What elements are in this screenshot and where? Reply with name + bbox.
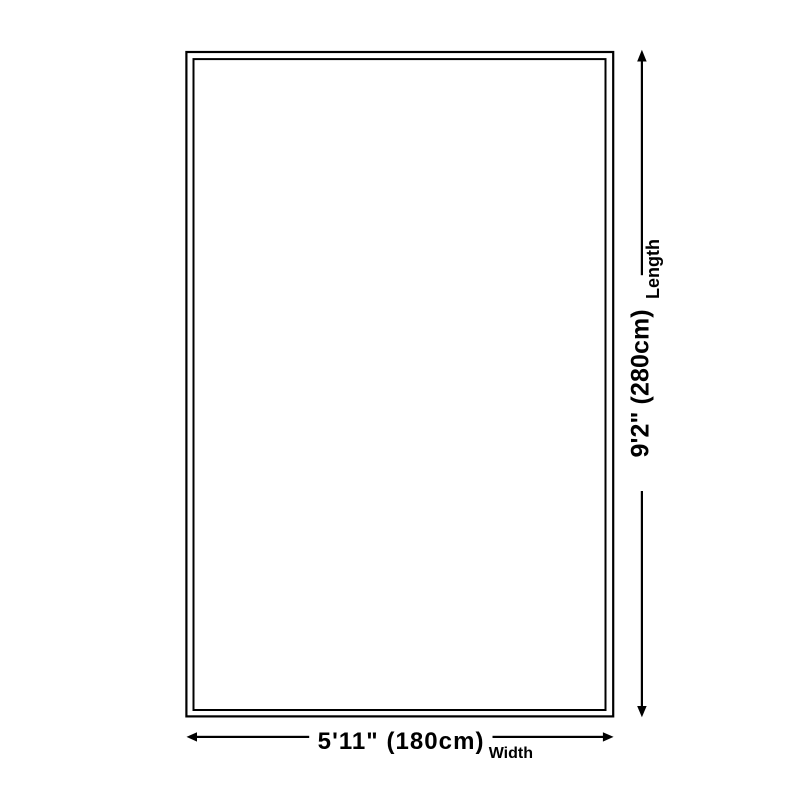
svg-text:5'11" (180cm): 5'11" (180cm) — [318, 728, 485, 755]
svg-text:Length: Length — [643, 239, 663, 299]
svg-text:9'2" (280cm): 9'2" (280cm) — [627, 309, 655, 457]
svg-text:Width: Width — [489, 745, 533, 762]
